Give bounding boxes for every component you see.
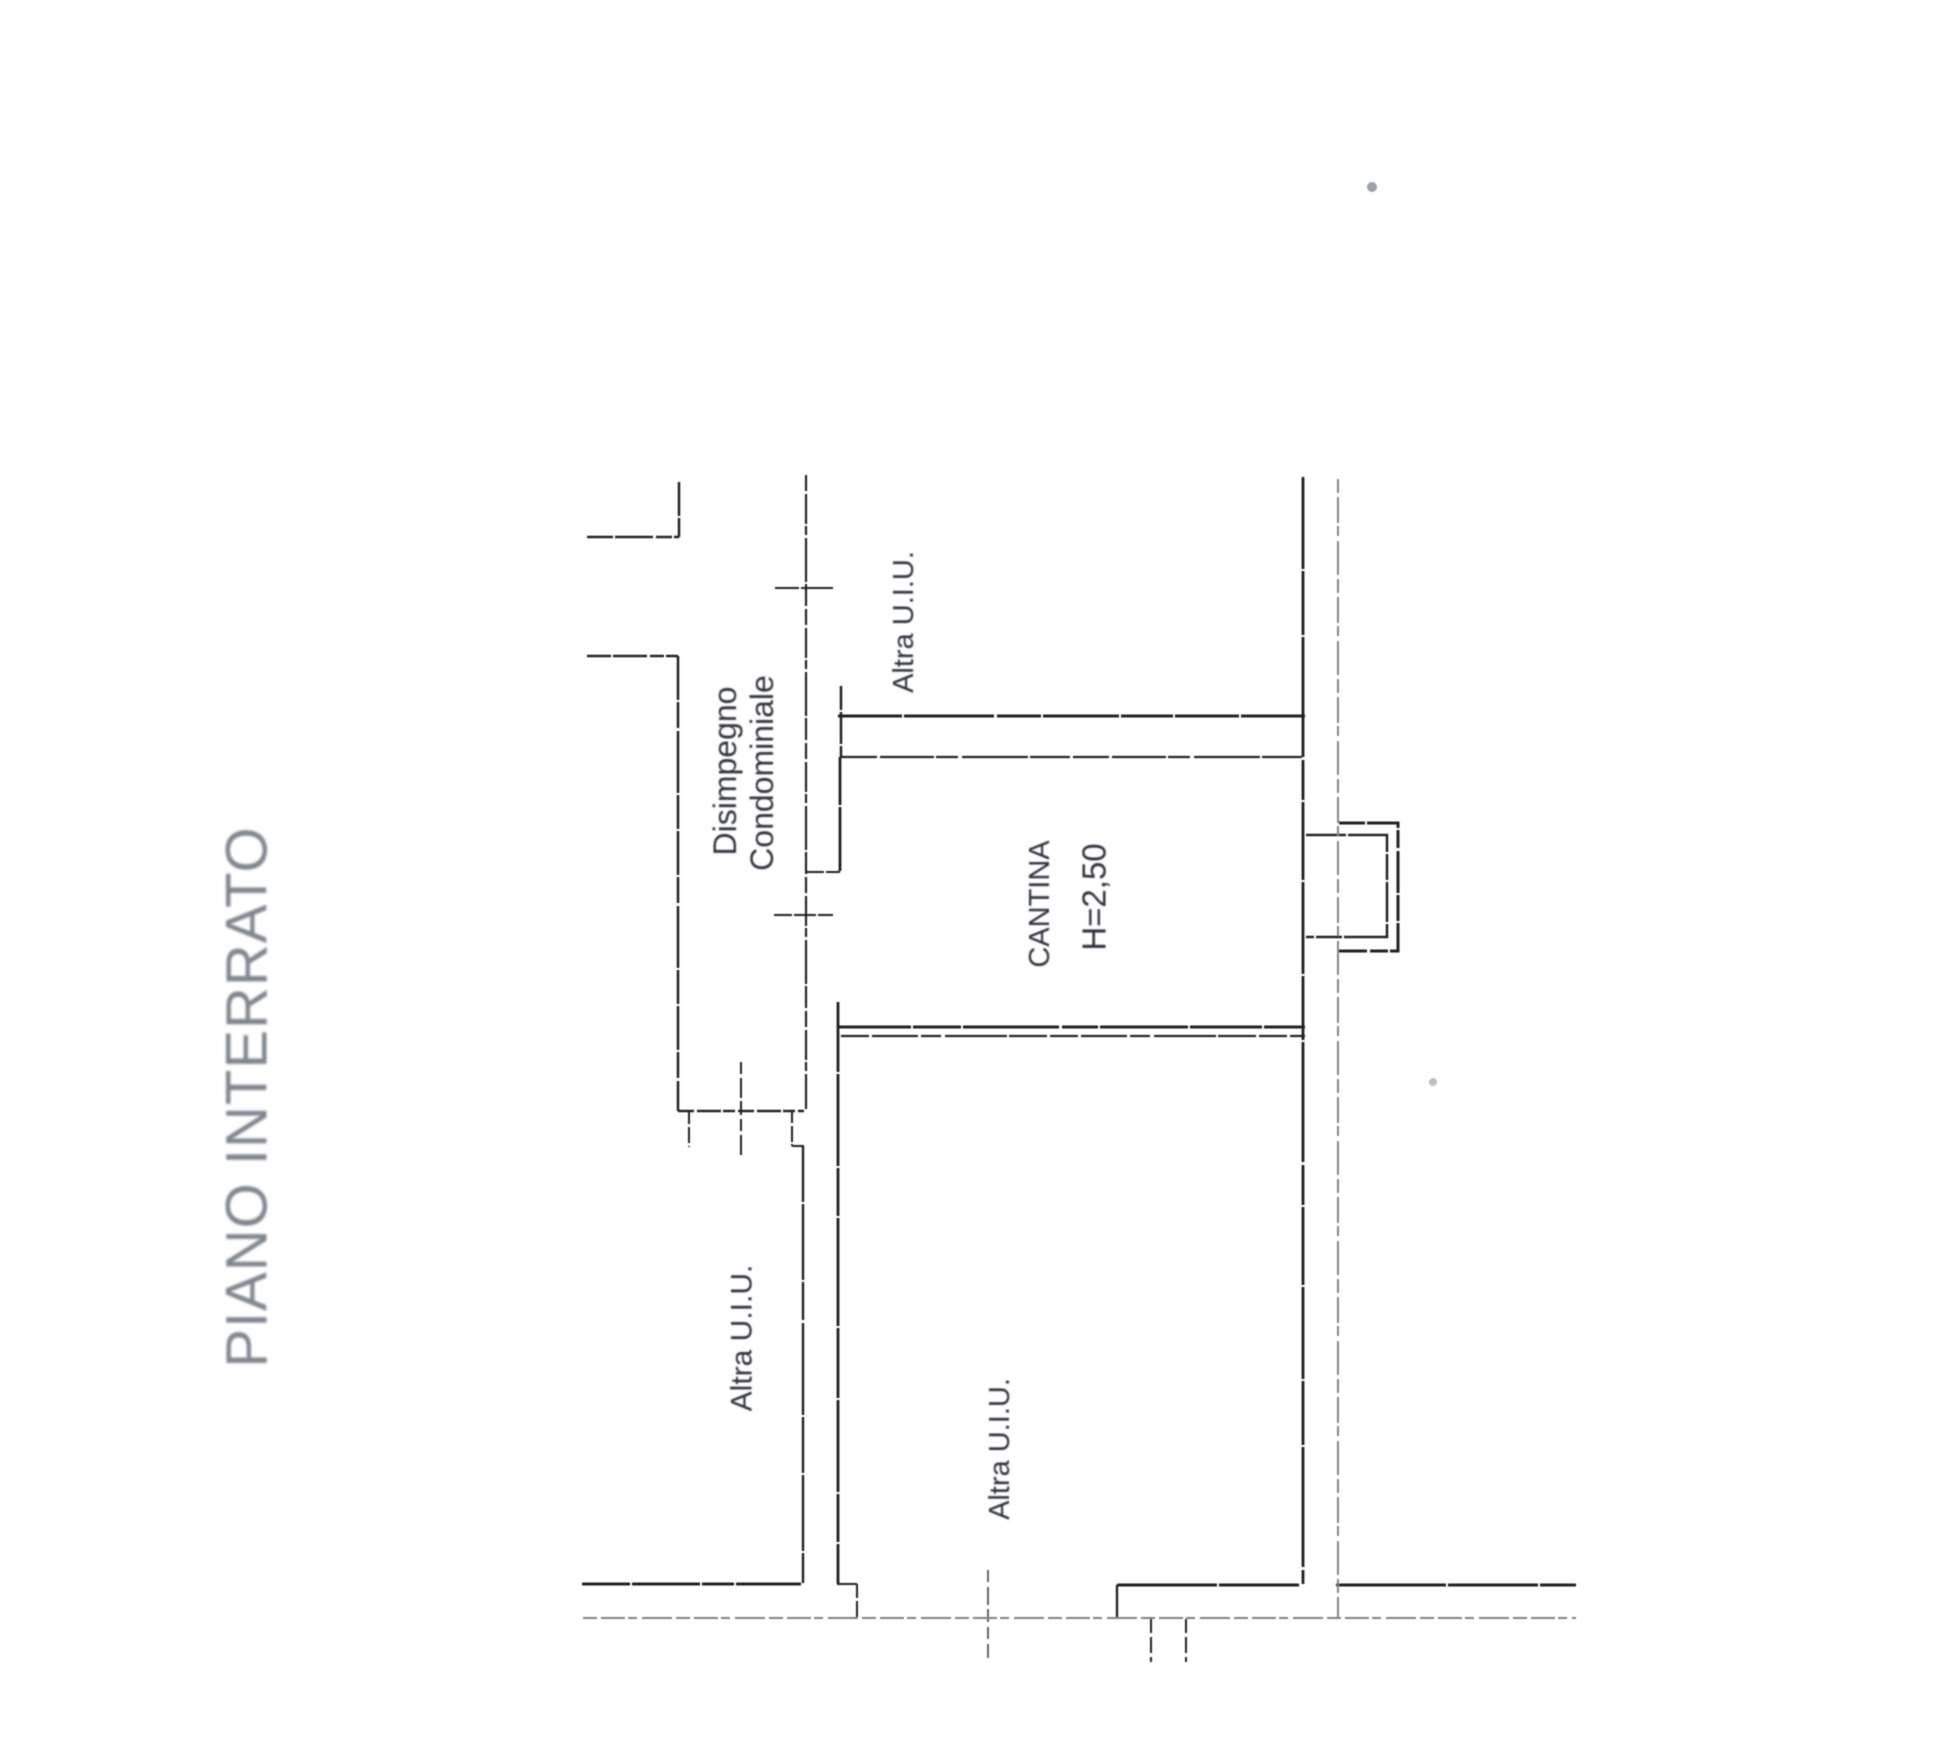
svg-text:Disimpegno: Disimpegno bbox=[707, 687, 743, 856]
svg-text:Altra U.I.U.: Altra U.I.U. bbox=[726, 1265, 759, 1412]
svg-text:Condominiale: Condominiale bbox=[744, 675, 780, 871]
svg-text:Altra U.I.U.: Altra U.I.U. bbox=[888, 551, 920, 693]
svg-text:Altra U.I.U.: Altra U.I.U. bbox=[984, 1378, 1016, 1520]
svg-text:H=2,50: H=2,50 bbox=[1076, 843, 1113, 950]
svg-text:CANTINA: CANTINA bbox=[1024, 840, 1056, 968]
svg-text:PIANO INTERRATO: PIANO INTERRATO bbox=[215, 826, 280, 1367]
